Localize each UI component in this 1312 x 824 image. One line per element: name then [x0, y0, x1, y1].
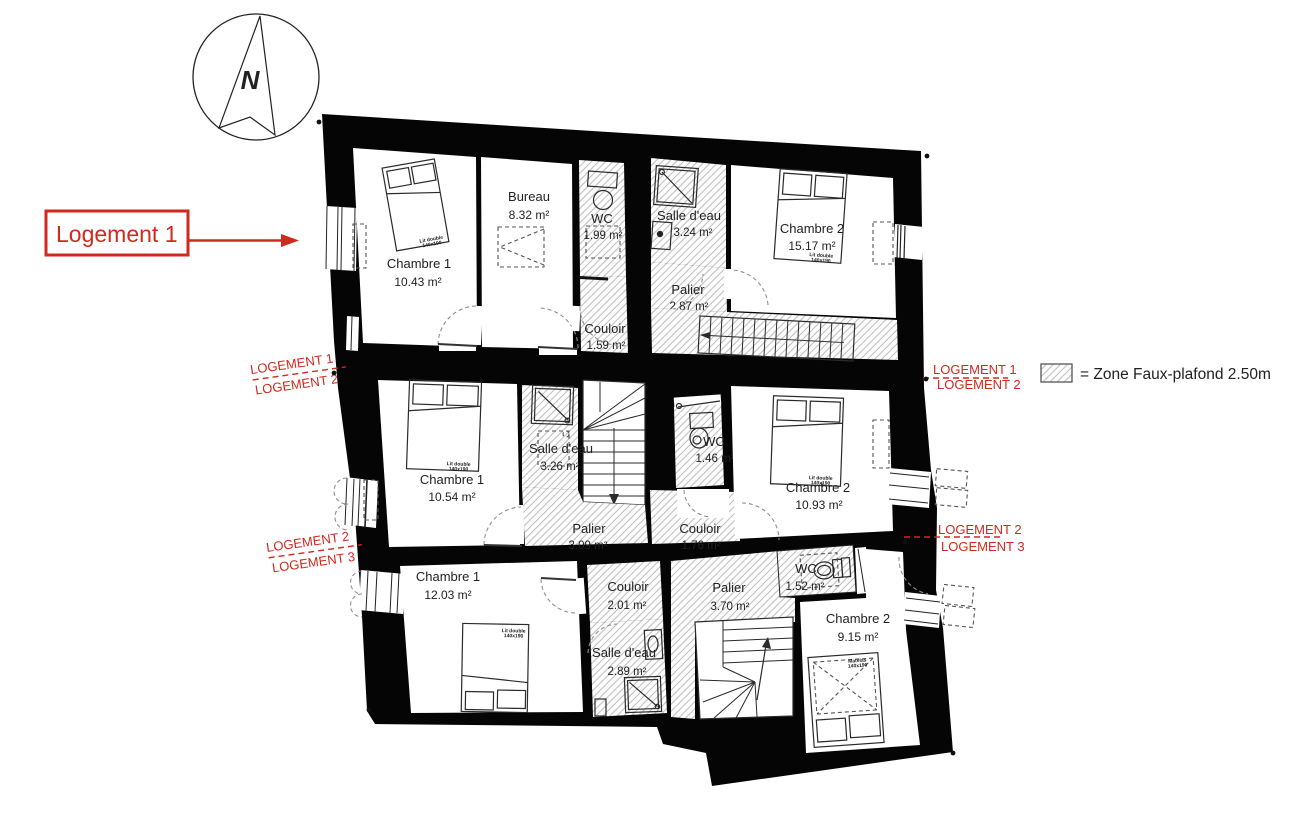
- svg-text:1.59 m²: 1.59 m²: [587, 340, 626, 352]
- svg-text:Palier: Palier: [572, 521, 606, 536]
- svg-text:Chambre 2: Chambre 2: [826, 611, 890, 626]
- svg-text:15.17 m²: 15.17 m²: [788, 239, 835, 253]
- svg-text:Salle d'eau: Salle d'eau: [529, 441, 593, 456]
- svg-text:3.24 m²: 3.24 m²: [674, 227, 713, 239]
- svg-text:WC: WC: [591, 211, 613, 226]
- svg-text:= Zone Faux-plafond 2.50m: = Zone Faux-plafond 2.50m: [1080, 366, 1271, 383]
- svg-text:1.76 m²: 1.76 m²: [682, 540, 721, 552]
- svg-text:8.32 m²: 8.32 m²: [509, 208, 550, 222]
- svg-text:Chambre 1: Chambre 1: [420, 472, 484, 487]
- svg-text:10.93 m²: 10.93 m²: [795, 498, 842, 512]
- svg-text:2.01 m²: 2.01 m²: [608, 600, 647, 612]
- svg-text:Chambre 1: Chambre 1: [416, 569, 480, 584]
- svg-text:Salle d'eau: Salle d'eau: [657, 208, 721, 223]
- svg-text:LOGEMENT 2: LOGEMENT 2: [938, 522, 1022, 537]
- svg-text:Chambre 2: Chambre 2: [786, 480, 850, 495]
- svg-text:1.99 m²: 1.99 m²: [584, 230, 623, 242]
- svg-text:N: N: [241, 65, 261, 95]
- svg-text:Chambre 2: Chambre 2: [780, 221, 844, 236]
- svg-text:Couloir: Couloir: [584, 321, 626, 336]
- svg-text:10.54 m²: 10.54 m²: [428, 490, 475, 504]
- svg-text:1.46 m²: 1.46 m²: [696, 453, 735, 465]
- svg-text:WC: WC: [703, 434, 725, 449]
- svg-text:140x190: 140x190: [504, 633, 524, 639]
- svg-text:3.26 m²: 3.26 m²: [541, 461, 580, 473]
- svg-text:12.03 m²: 12.03 m²: [424, 588, 471, 602]
- svg-text:Chambre 1: Chambre 1: [387, 256, 451, 271]
- svg-text:1.52 m²: 1.52 m²: [786, 581, 825, 593]
- svg-text:Couloir: Couloir: [607, 579, 649, 594]
- svg-text:Salle d'eau: Salle d'eau: [592, 645, 656, 660]
- svg-text:10.43 m²: 10.43 m²: [394, 275, 441, 289]
- svg-text:9.15 m²: 9.15 m²: [838, 630, 879, 644]
- svg-text:Couloir: Couloir: [679, 521, 721, 536]
- svg-text:WC: WC: [795, 561, 817, 576]
- svg-text:Bureau: Bureau: [508, 189, 550, 204]
- svg-text:Palier: Palier: [671, 282, 705, 297]
- svg-text:3.09 m²: 3.09 m²: [569, 540, 608, 552]
- svg-text:LOGEMENT 1: LOGEMENT 1: [933, 362, 1017, 377]
- svg-text:Palier: Palier: [712, 580, 746, 595]
- svg-text:LOGEMENT 3: LOGEMENT 3: [941, 539, 1025, 554]
- svg-text:2.89 m²: 2.89 m²: [608, 666, 647, 678]
- svg-text:3.70 m²: 3.70 m²: [711, 601, 750, 613]
- svg-text:Logement 1: Logement 1: [56, 221, 177, 247]
- svg-text:LOGEMENT 2: LOGEMENT 2: [937, 377, 1021, 392]
